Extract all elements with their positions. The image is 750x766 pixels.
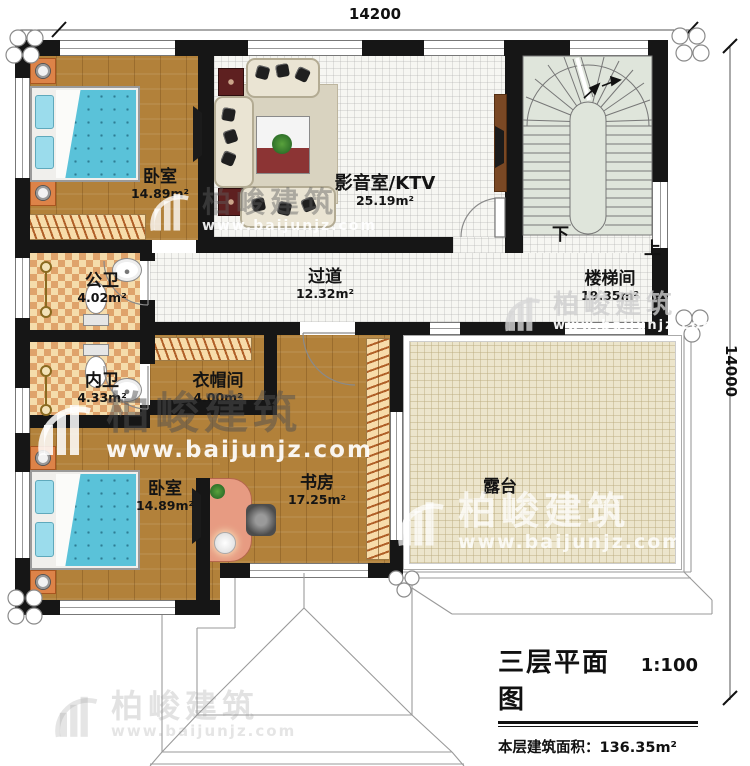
stair-up-label: 上: [644, 234, 661, 259]
title-rule-thin: [498, 726, 698, 727]
room-label-inner-bath: 内卫 4.33m²: [52, 372, 152, 404]
dimension-right: 14000: [722, 336, 740, 406]
towel-bar-icon: [41, 262, 51, 415]
room-label-stairwell: 楼梯间 19.35m²: [550, 270, 670, 302]
dimension-top: 14200: [330, 5, 420, 23]
room-label-corridor: 过道 12.32m²: [265, 268, 385, 300]
terrace-railing: [403, 335, 712, 614]
roof-outline: [150, 573, 464, 766]
plan-scale: 1:100: [641, 655, 698, 676]
room-label-study: 书房 17.25m²: [262, 474, 372, 506]
room-label-terrace: 露台: [455, 478, 545, 497]
title-block: 三层平面图 1:100 本层建筑面积：136.35m² 层高：3.3m: [498, 642, 698, 766]
title-rule-thick: [498, 721, 698, 724]
staircase: [523, 56, 652, 235]
room-label-media: 影音室/KTV 25.19m²: [310, 174, 460, 208]
floor-area-text: 本层建筑面积：136.35m²: [498, 736, 698, 757]
plan-title: 三层平面图: [498, 642, 631, 716]
room-label-public-bath: 公卫 4.02m²: [52, 272, 152, 304]
room-label-bedroom2: 卧室 14.89m²: [105, 480, 225, 512]
room-label-bedroom1: 卧室 14.89m²: [100, 168, 220, 200]
room-label-cloakroom: 衣帽间 4.00m²: [168, 372, 268, 404]
floor-plan: 卧室 14.89m² 影音室/KTV 25.19m² 过道 12.32m² 楼梯…: [0, 0, 750, 766]
stair-down-label: 下: [552, 220, 569, 245]
door-swings: [104, 198, 505, 409]
